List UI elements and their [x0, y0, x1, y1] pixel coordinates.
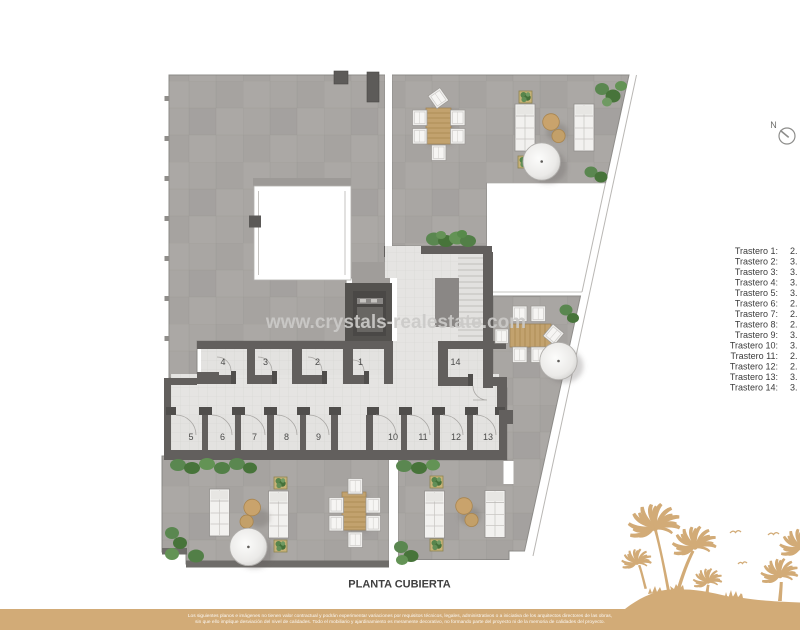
svg-text:3.: 3.	[790, 372, 798, 382]
svg-text:N: N	[770, 120, 777, 130]
svg-text:10: 10	[388, 432, 398, 442]
svg-text:2.: 2.	[790, 309, 798, 319]
svg-text:7: 7	[252, 432, 257, 442]
svg-text:3.: 3.	[790, 257, 798, 267]
svg-text:2.: 2.	[790, 351, 798, 361]
svg-text:www.crystals-realestate.com: www.crystals-realestate.com	[265, 312, 526, 333]
svg-text:Trastero 7:: Trastero 7:	[735, 309, 778, 319]
svg-text:3: 3	[263, 357, 268, 367]
svg-text:Trastero 6:: Trastero 6:	[735, 299, 778, 309]
svg-text:Trastero 3:: Trastero 3:	[735, 267, 778, 277]
svg-text:3.: 3.	[790, 267, 798, 277]
svg-text:8: 8	[284, 432, 289, 442]
svg-text:4: 4	[220, 357, 225, 367]
svg-text:12: 12	[451, 432, 461, 442]
svg-text:Trastero 1:: Trastero 1:	[735, 246, 778, 256]
svg-text:sin que ello implique desviaci: sin que ello implique desviación del niv…	[195, 619, 605, 625]
svg-text:3.: 3.	[790, 383, 798, 393]
svg-text:Trastero 4:: Trastero 4:	[735, 278, 778, 288]
svg-text:Trastero 2:: Trastero 2:	[735, 257, 778, 267]
svg-text:Los siguientes planos e imágen: Los siguientes planos e imágenes no tien…	[188, 613, 612, 619]
svg-text:6: 6	[220, 432, 225, 442]
svg-text:2: 2	[315, 357, 320, 367]
svg-text:2.: 2.	[790, 362, 798, 372]
svg-text:Trastero 5:: Trastero 5:	[735, 288, 778, 298]
svg-text:3.: 3.	[790, 341, 798, 351]
svg-text:Trastero 11:: Trastero 11:	[730, 351, 778, 361]
svg-text:11: 11	[418, 432, 427, 442]
svg-text:2.: 2.	[790, 246, 798, 256]
svg-text:3.: 3.	[790, 278, 798, 288]
svg-text:13: 13	[483, 432, 493, 442]
svg-text:2.: 2.	[790, 320, 798, 330]
svg-text:1: 1	[358, 357, 363, 367]
svg-text:Trastero 14:: Trastero 14:	[730, 383, 778, 393]
svg-text:3.: 3.	[790, 288, 798, 298]
svg-text:Trastero 10:: Trastero 10:	[730, 341, 778, 351]
svg-text:Trastero 9:: Trastero 9:	[735, 330, 778, 340]
svg-text:9: 9	[316, 432, 321, 442]
svg-text:Trastero 12:: Trastero 12:	[730, 362, 778, 372]
svg-text:14: 14	[450, 357, 460, 367]
svg-text:5: 5	[188, 432, 193, 442]
svg-text:PLANTA CUBIERTA: PLANTA CUBIERTA	[348, 579, 451, 591]
svg-text:2.: 2.	[790, 299, 798, 309]
svg-text:Trastero 13:: Trastero 13:	[730, 372, 778, 382]
svg-text:3.: 3.	[790, 330, 798, 340]
svg-text:Trastero 8:: Trastero 8:	[735, 320, 778, 330]
